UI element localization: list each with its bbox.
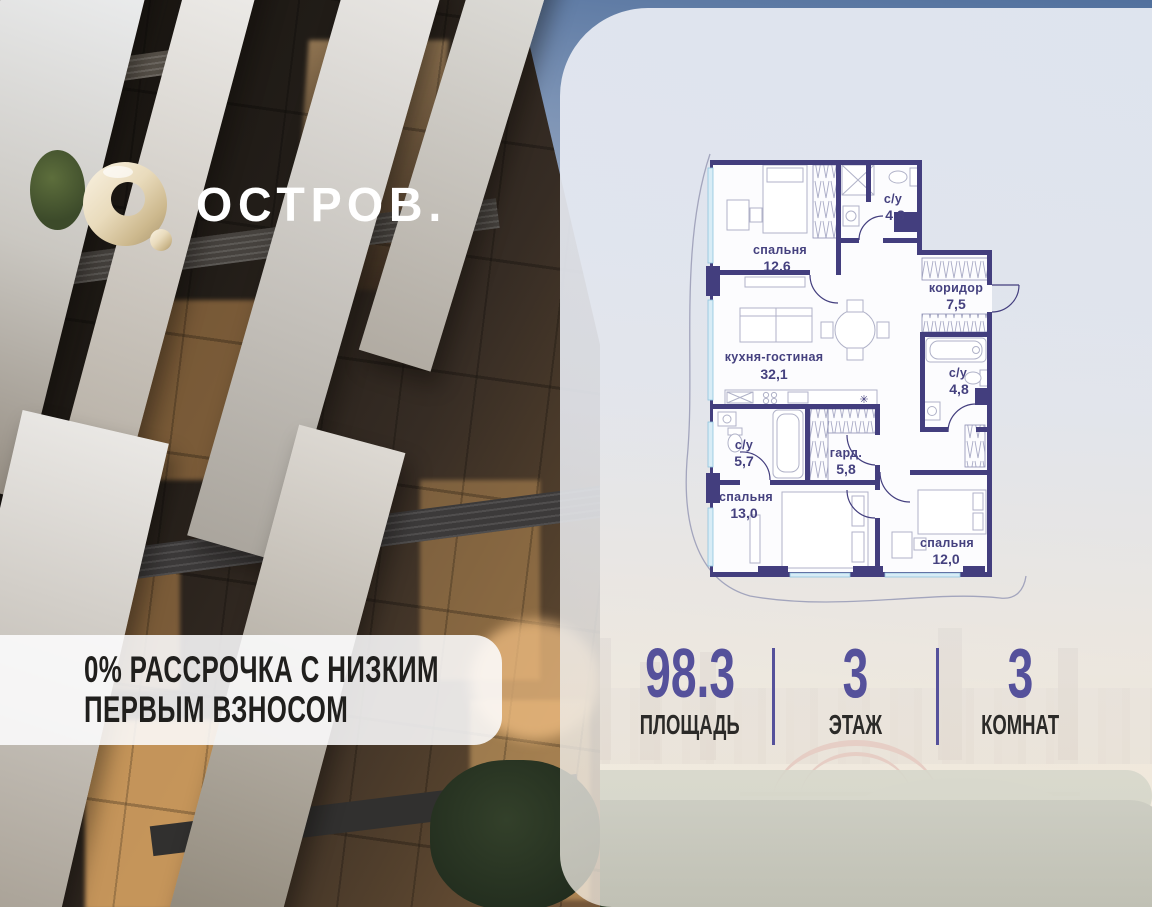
room-label: с/у (949, 366, 967, 380)
stat-rooms: 3 КОМНАТ (935, 642, 1105, 740)
room-area: 12,0 (932, 551, 959, 567)
promo-line-2: ПЕРВЫМ ВЗНОСОМ (84, 690, 348, 730)
room-label: спальня (920, 536, 974, 550)
fridge-snowflake-icon: ✳ (859, 394, 868, 406)
brand-logo: ОСТРОВ. (80, 156, 510, 256)
room-label: спальня (719, 490, 773, 504)
room-label: с/у (735, 438, 753, 452)
floorplan: спальня 12,6 с/у 4,8 коридор 7,5 кухня-г… (670, 140, 1050, 620)
room-label: с/у (884, 192, 902, 206)
stats-row: 98.3 ПЛОЩАДЬ 3 ЭТАЖ 3 КОМНАТ (560, 642, 1152, 754)
room-area: 12,6 (763, 258, 790, 274)
room-area: 5,7 (734, 453, 754, 469)
stat-rooms-value: 3 (1007, 642, 1033, 704)
promo-line-1: 0% РАССРОЧКА С НИЗКИМ (84, 650, 439, 690)
room-area: 13,0 (730, 505, 757, 521)
stat-floor: 3 ЭТАЖ (770, 642, 940, 740)
room-label: коридор (929, 281, 983, 295)
stat-area-label: ПЛОЩАДЬ (640, 710, 740, 740)
stat-area: 98.3 ПЛОЩАДЬ (605, 642, 775, 740)
room-area: 5,8 (836, 461, 856, 477)
logo-donut-icon (80, 156, 180, 256)
room-label: гард. (830, 446, 862, 460)
room-area: 7,5 (946, 296, 966, 312)
stat-rooms-label: КОМНАТ (981, 710, 1059, 740)
stat-area-value: 98.3 (645, 642, 735, 704)
promo-banner: 0% РАССРОЧКА С НИЗКИМ ПЕРВЫМ ВЗНОСОМ (0, 635, 502, 745)
room-area: 4,8 (885, 207, 905, 223)
stat-floor-label: ЭТАЖ (828, 710, 881, 740)
ad-creative: спальня 12,6 с/у 4,8 коридор 7,5 кухня-г… (0, 0, 1152, 907)
room-area: 4,8 (949, 381, 969, 397)
stat-floor-value: 3 (842, 642, 868, 704)
building-photo (0, 0, 600, 907)
room-area: 32,1 (760, 366, 787, 382)
balcony-plant (30, 150, 85, 230)
room-label: кухня-гостиная (725, 350, 824, 364)
brand-wordmark: ОСТРОВ. (196, 178, 447, 233)
room-label: спальня (753, 243, 807, 257)
